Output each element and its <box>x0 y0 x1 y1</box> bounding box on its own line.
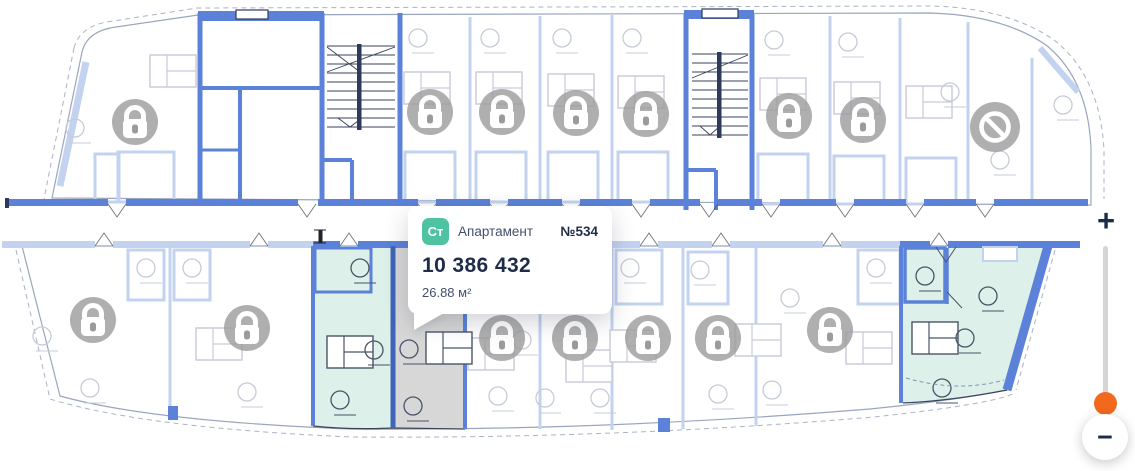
zoom-out-button[interactable]: − <box>1082 414 1128 460</box>
tooltip-unit-number: №534 <box>560 224 598 239</box>
minus-icon: − <box>1097 422 1113 453</box>
tooltip-type-badge: Ст <box>422 218 449 245</box>
tooltip-pointer <box>414 313 444 330</box>
lock-icon <box>766 93 812 139</box>
prohibited-icon <box>970 102 1020 152</box>
floor-plan-viewer: Ст Апартамент №534 10 386 432 26.88 м² +… <box>0 0 1135 471</box>
lock-icon <box>623 91 669 137</box>
lock-icon <box>695 315 741 361</box>
lock-icon <box>840 97 886 143</box>
unit-tooltip: Ст Апартамент №534 10 386 432 26.88 м² <box>408 206 612 314</box>
tooltip-area: 26.88 м² <box>422 285 598 300</box>
lock-icon <box>552 315 598 361</box>
lock-icon <box>407 89 453 135</box>
lock-icon <box>70 297 116 343</box>
zoom-slider-track[interactable] <box>1103 246 1108 406</box>
plus-icon: + <box>1097 203 1115 239</box>
zoom-slider-handle[interactable] <box>1094 392 1117 415</box>
lock-icon <box>807 307 853 353</box>
lock-icon <box>112 99 158 145</box>
lock-icon <box>553 90 599 136</box>
lock-icon <box>479 315 525 361</box>
lock-icon <box>479 89 525 135</box>
tooltip-type-label: Апартамент <box>458 224 533 239</box>
lock-icon <box>625 315 671 361</box>
lock-icon <box>224 305 270 351</box>
tooltip-price: 10 386 432 <box>422 254 598 278</box>
zoom-in-button[interactable]: + <box>1090 205 1122 237</box>
